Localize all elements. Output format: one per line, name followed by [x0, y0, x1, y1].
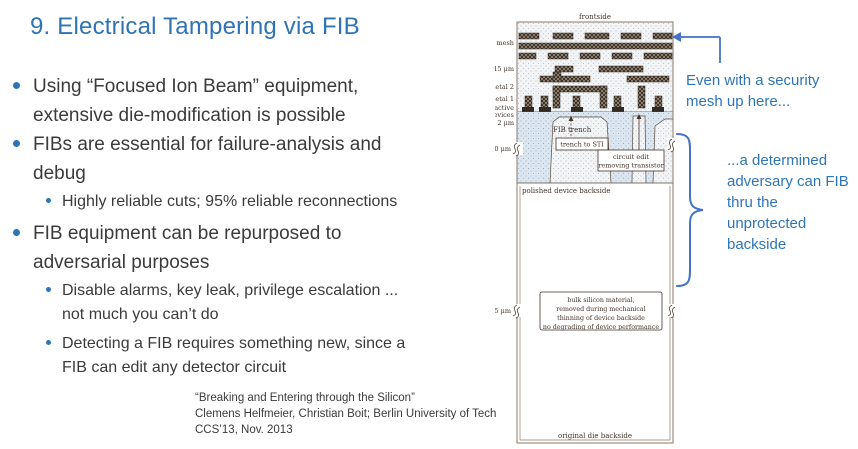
label-bulk-2: removed during mechanical [556, 306, 645, 313]
label-polished-backside: polished device backside [522, 187, 611, 195]
bullet-subitem: Disable alarms, key leak, privilege esca… [62, 279, 512, 327]
bullet-marker [13, 229, 20, 236]
bullet-item: Using “Focused Ion Beam” equipment, exte… [33, 72, 503, 130]
mesh-annotation: Even with a security mesh up here... [686, 70, 854, 112]
citation-authors: Clemens Helfmeier, Christian Boit; Berli… [195, 406, 525, 422]
dimension-labels: mesh 15 μm metal 2 metal 1 active device… [495, 39, 514, 315]
mesh-pointer-arrowhead [672, 32, 681, 42]
citation-venue: CCS’13, Nov. 2013 [195, 422, 525, 438]
label-bulk-3: thinning of device backside [557, 315, 645, 322]
label-metal1: metal 1 [495, 95, 514, 103]
label-circuit-edit-1: circuit edit [613, 153, 649, 161]
chip-cross-section-diagram: frontside FIB trench [495, 10, 685, 449]
label-frontside: frontside [579, 13, 611, 21]
bullet-marker [13, 82, 20, 89]
label-fib-trench: FIB trench [553, 126, 592, 134]
bullet-subitem: Highly reliable cuts; 95% reliable recon… [62, 190, 512, 214]
label-30um: 30 μm [495, 145, 511, 153]
label-2um: 2 μm [497, 119, 514, 127]
label-315um: 315 μm [495, 307, 511, 315]
label-circuit-edit-2: removing transistor [598, 162, 664, 170]
bullet-item: FIB equipment can be repurposed to adver… [33, 219, 503, 277]
label-original-backside: original die backside [558, 432, 632, 440]
citation-title: “Breaking and Entering through the Silic… [195, 390, 525, 406]
label-devices: devices [495, 111, 514, 119]
citation: “Breaking and Entering through the Silic… [195, 390, 525, 438]
bullet-marker [46, 340, 51, 345]
backside-brace [677, 134, 703, 286]
slide: { "slide": { "title": "9. Electrical Tam… [0, 0, 858, 449]
slide-title: 9. Electrical Tampering via FIB [30, 13, 490, 41]
backside-annotation: ...a determined adversary can FIB thru t… [727, 150, 858, 255]
bullet-item: FIBs are essential for failure-analysis … [33, 130, 503, 188]
bullet-marker [13, 140, 20, 147]
bullet-subitem: Detecting a FIB requires something new, … [62, 332, 512, 380]
label-bulk-1: bulk silicon material, [567, 297, 634, 304]
bullet-marker [46, 287, 51, 292]
label-mesh: mesh [496, 39, 514, 47]
label-bulk-4: no degrading of device performance [543, 324, 659, 331]
bullet-marker [46, 198, 51, 203]
label-trench-to-sti: trench to STI [560, 141, 604, 149]
label-metal2: metal 2 [495, 83, 514, 91]
mesh-pointer-arrow [680, 37, 720, 63]
label-15um: 15 μm [495, 65, 514, 73]
